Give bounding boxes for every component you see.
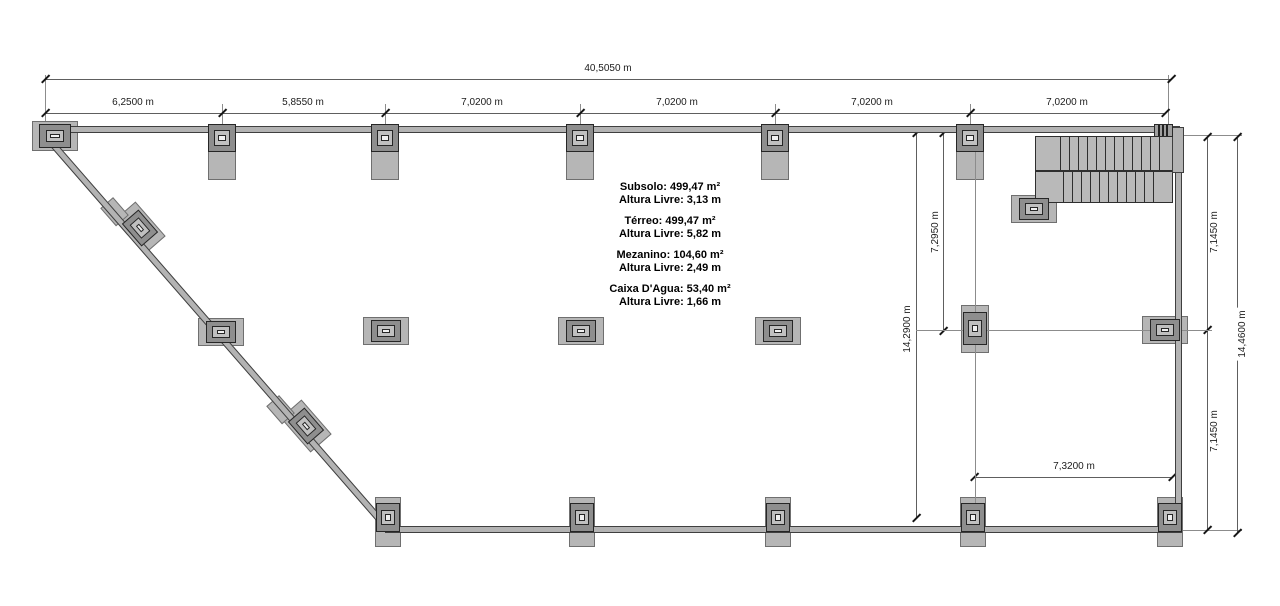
wall-stair-jamb <box>1172 127 1184 173</box>
extension-line <box>222 104 223 126</box>
dim-top-segment-3: 7,0200 m <box>458 97 506 109</box>
column-core <box>570 503 594 532</box>
column-center <box>579 514 586 520</box>
column-core <box>1019 198 1049 220</box>
column-center <box>50 134 59 139</box>
column-ring <box>771 510 785 526</box>
stair-tread <box>1126 172 1127 202</box>
dim-right-outer-lower: 7,1450 m <box>1209 407 1221 455</box>
stair-tread <box>1069 137 1070 170</box>
stair-tread <box>1144 172 1145 202</box>
dim-right-inner-upper: 7,2950 m <box>930 208 942 256</box>
column-core <box>1150 319 1180 341</box>
column-center <box>302 421 311 430</box>
dim-right-outer-full: 14,4600 m <box>1237 307 1249 360</box>
stair-tread <box>1090 172 1091 202</box>
column-ring <box>377 325 394 337</box>
floor-caixa-dagua: Caixa D'Agua: 53,40 m² Altura Livre: 1,6… <box>553 283 787 308</box>
dim-top-segment-4: 7,0200 m <box>653 97 701 109</box>
column-center <box>972 325 979 332</box>
stair-tread <box>1108 172 1109 202</box>
floor-plan-canvas: 40,5050 m 6,2500 m 5,8550 m 7,0200 m 7,0… <box>0 0 1280 606</box>
dim-top-segment-5: 7,0200 m <box>848 97 896 109</box>
column-center <box>385 514 392 520</box>
dimension-line-7-145 <box>1207 137 1208 530</box>
floor-area: Térreo: 499,47 m² <box>553 215 787 228</box>
column-core <box>371 124 399 152</box>
extension-line <box>1183 530 1242 531</box>
column-core <box>208 124 236 152</box>
floor-clearance: Altura Livre: 1,66 m <box>553 296 787 309</box>
column-ring <box>968 320 982 338</box>
dimension-line-7-295 <box>943 133 944 332</box>
column-ring <box>572 325 589 337</box>
column-ring <box>381 510 395 526</box>
column-ring <box>767 130 783 145</box>
column-center <box>1030 207 1039 211</box>
column-hatch-bar <box>1158 125 1160 136</box>
column-center <box>771 135 779 141</box>
dim-right-outer-upper: 7,1450 m <box>1209 208 1221 256</box>
column-core <box>1158 503 1182 532</box>
column-center <box>217 330 226 334</box>
floor-mezanino: Mezanino: 104,60 m² Altura Livre: 2,49 m <box>553 249 787 274</box>
stair-tread <box>1150 137 1151 170</box>
column-center <box>775 514 782 520</box>
column-ring <box>130 218 150 239</box>
extension-line <box>1183 135 1242 136</box>
floor-subsolo: Subsolo: 499,47 m² Altura Livre: 3,13 m <box>553 181 787 206</box>
column-center <box>1167 514 1174 520</box>
stair-tread <box>1060 137 1061 170</box>
column-core <box>763 320 793 342</box>
column-core <box>39 124 71 148</box>
extension-line <box>45 75 46 126</box>
stair-tread <box>1087 137 1088 170</box>
dimension-line-overall <box>45 79 1171 80</box>
floor-area: Mezanino: 104,60 m² <box>553 249 787 262</box>
column-ring <box>769 325 786 337</box>
column-center <box>382 329 391 333</box>
column-core <box>761 124 789 152</box>
areas-annotation: Subsolo: 499,47 m² Altura Livre: 3,13 m … <box>553 181 787 317</box>
extension-line <box>775 104 776 126</box>
column-center <box>970 514 977 520</box>
column-hatch-bar <box>1166 125 1168 136</box>
stair-tread <box>1099 172 1100 202</box>
dimension-line-14-29 <box>916 133 917 518</box>
column-ring <box>296 416 316 437</box>
dim-right-inner-full: 14,2900 m <box>902 302 914 355</box>
column-ring <box>377 130 393 145</box>
column-core <box>963 312 987 345</box>
column-core <box>766 503 790 532</box>
stair-tread <box>1153 172 1154 202</box>
column-hatch-bar <box>1162 125 1164 136</box>
stair-tread <box>1141 137 1142 170</box>
column-center <box>1161 328 1170 332</box>
dim-bottom-bay: 7,3200 m <box>1050 461 1098 473</box>
column-ring <box>966 510 980 526</box>
dimension-tick <box>912 513 921 522</box>
extension-line <box>970 104 971 126</box>
stair-tread <box>1081 172 1082 202</box>
floor-clearance: Altura Livre: 2,49 m <box>553 262 787 275</box>
column-ring <box>1025 203 1042 215</box>
column-ring <box>1156 324 1173 336</box>
column-ring <box>214 130 230 145</box>
stair-flight-upper <box>1035 136 1173 171</box>
column-center <box>966 135 974 141</box>
column-center <box>136 223 145 232</box>
floor-area: Caixa D'Agua: 53,40 m² <box>553 283 787 296</box>
column-core <box>961 503 985 532</box>
stair-tread <box>1063 172 1064 202</box>
dim-top-segment-6: 7,0200 m <box>1043 97 1091 109</box>
stair-tread <box>1114 137 1115 170</box>
stair-tread <box>1078 137 1079 170</box>
dimension-line-segments <box>45 113 1165 114</box>
column-core <box>206 321 236 343</box>
column-ring <box>962 130 978 145</box>
column-center <box>218 135 226 141</box>
column-center <box>381 135 389 141</box>
column-ring <box>212 326 229 338</box>
column-center <box>774 329 783 333</box>
column-ring <box>1163 510 1177 526</box>
stair-landing-divider <box>1036 170 1172 171</box>
stair-tread <box>1132 137 1133 170</box>
column-ring <box>575 510 589 526</box>
stair-tread <box>1159 137 1160 170</box>
dimension-line-7-32 <box>974 477 1172 478</box>
stair-tread <box>1135 172 1136 202</box>
extension-line <box>580 104 581 126</box>
floor-clearance: Altura Livre: 5,82 m <box>553 228 787 241</box>
floor-clearance: Altura Livre: 3,13 m <box>553 194 787 207</box>
dim-top-segment-2: 5,8550 m <box>279 97 327 109</box>
column-center <box>577 329 586 333</box>
stair-tread <box>1072 172 1073 202</box>
stair-tread <box>1123 137 1124 170</box>
extension-line <box>385 104 386 126</box>
column-core <box>566 320 596 342</box>
stair-tread <box>1105 137 1106 170</box>
column-ring <box>46 130 65 143</box>
column-center <box>576 135 584 141</box>
floor-terreo: Térreo: 499,47 m² Altura Livre: 5,82 m <box>553 215 787 240</box>
stair-tread <box>1096 137 1097 170</box>
column-core <box>376 503 400 532</box>
column-core <box>371 320 401 342</box>
dim-top-overall: 40,5050 m <box>581 63 634 75</box>
column-core <box>956 124 984 152</box>
column-ring <box>572 130 588 145</box>
floor-area: Subsolo: 499,47 m² <box>553 181 787 194</box>
column-core <box>566 124 594 152</box>
dim-top-segment-1: 6,2500 m <box>109 97 157 109</box>
stair-tread <box>1117 172 1118 202</box>
